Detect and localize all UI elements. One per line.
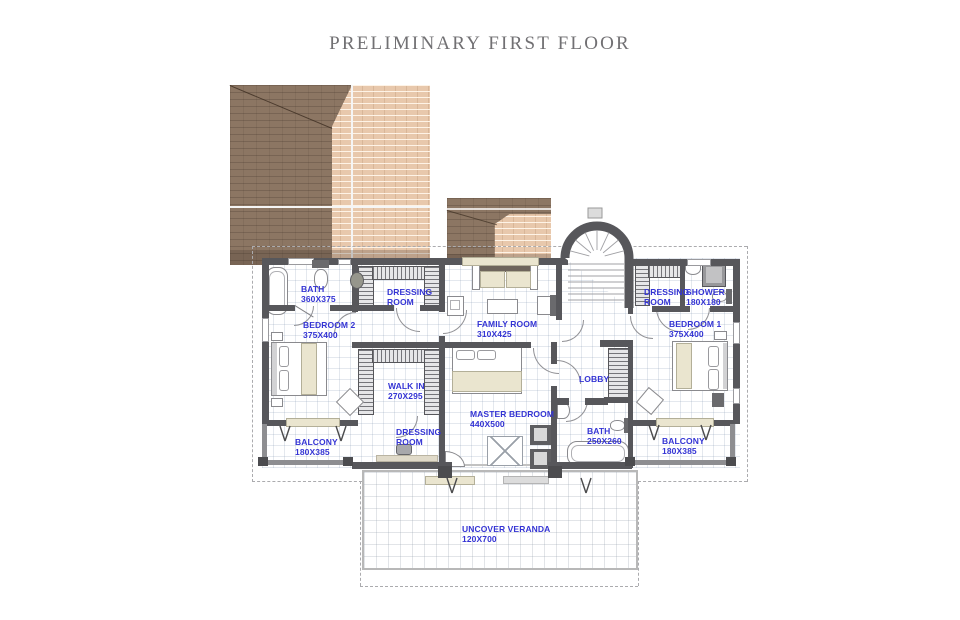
boundary-dashed-right [747,246,748,482]
side-table-icon [712,393,724,407]
page-title: PRELIMINARY FIRST FLOOR [0,33,960,55]
sliding-door [286,418,340,427]
room-label-balcony-right: BALCONY 180X385 [662,436,705,456]
roof-family-ridge [447,208,551,210]
room-name: SHOWER [686,287,725,297]
wall [439,265,445,312]
room-label-walk-in: WALK IN 270X295 [388,381,425,401]
dressing-bench [376,455,438,462]
wardrobe-icon [372,349,426,363]
wall [443,342,531,348]
wall [585,398,608,405]
pillow-icon [279,346,289,367]
room-name: BATH [587,426,622,436]
veranda-step-2 [503,476,549,484]
room-dims: 375X400 [669,329,721,339]
window [262,318,269,342]
room-label-veranda: UNCOVER VERANDA 120X700 [462,524,550,544]
wall [439,336,445,420]
drain-mark-icon [648,424,660,442]
room-label-shower: SHOWER 180X180 [686,287,725,307]
window [733,322,740,344]
wardrobe-icon [424,349,440,415]
window-family-room [462,257,539,266]
room-name: DRESSING ROOM [396,427,448,447]
blanket [452,371,522,392]
room-label-bath-1: BATH 250X260 [587,426,622,446]
room-name: LOBBY [579,374,609,384]
roof-family-hip-line [447,210,497,225]
wall [628,340,633,468]
sink-icon [350,272,364,289]
room-name: FAMILY ROOM [477,319,537,329]
veranda-column [548,466,562,478]
sofa-icon [480,271,505,288]
room-dims: 180X180 [686,297,725,307]
room-dims: 360X375 [301,294,336,304]
wall [330,305,352,311]
headboard [723,343,727,389]
pillow-icon [708,369,719,390]
blanket [301,343,317,395]
room-label-bedroom-2: BEDROOM 2 375X400 [303,320,355,340]
nightstand-icon [271,398,283,407]
room-name: UNCOVER VERANDA [462,524,550,534]
room-label-family-room: FAMILY ROOM 310X425 [477,319,537,339]
headboard [272,343,277,395]
lamp-icon [450,300,460,310]
roof-main [230,85,430,265]
coffee-table-icon [487,299,518,314]
room-name: WALK IN [388,381,425,391]
shower-tray [706,267,722,283]
roof-ridge-horizontal [230,206,430,208]
roof-main-lit-side [230,85,430,265]
floor-plan-canvas: PRELIMINARY FIRST FLOOR [0,0,960,620]
boundary-dashed-veranda-bottom [360,586,638,587]
room-label-bedroom-1: BEDROOM 1 375X400 [669,319,721,339]
room-name: MASTER BEDROOM [470,409,554,419]
room-dims: 375X400 [303,330,355,340]
wall [551,342,557,364]
balcony-post [258,457,268,466]
room-dims: 120X700 [462,534,550,544]
room-name: DRESSING ROOM [387,287,439,307]
drain-mark-icon [279,425,291,443]
boundary-dashed-bottom-left [252,481,362,482]
pillow-icon [279,370,289,391]
room-dims: 180X385 [295,447,338,457]
ottoman-cushion [534,452,547,465]
staircase-icon [556,198,638,312]
room-label-dressing-bottom: DRESSING ROOM [396,427,448,447]
window [733,388,740,404]
toilet-tank [726,289,732,304]
room-name: BALCONY [295,437,338,447]
wall [557,398,569,405]
wall [352,342,444,348]
wall [352,462,452,469]
room-label-lobby: LOBBY [579,374,609,384]
wall [265,305,295,311]
balcony-railing [262,460,352,465]
room-dims: 440X500 [470,419,554,429]
window [338,259,351,265]
room-label-balcony-left: BALCONY 180X385 [295,437,338,457]
roof-family [447,198,551,260]
drain-mark-icon [446,477,458,495]
pillow-icon [477,350,496,360]
room-name: BEDROOM 1 [669,319,721,329]
toilet-tank [312,260,329,268]
boundary-dashed-left [252,246,253,482]
drain-mark-icon [580,477,592,495]
bathtub-inner [571,445,625,462]
boundary-dashed-top [252,246,747,247]
room-label-bath-2: BATH 360X375 [301,284,336,304]
pillow-icon [456,350,475,360]
veranda-slab [362,470,638,570]
room-dims: 270X295 [388,391,425,401]
boundary-dashed-bottom-right [638,481,747,482]
roof-ridge-vertical [351,85,353,265]
room-name: BATH [301,284,336,294]
room-name: BEDROOM 2 [303,320,355,330]
window [288,258,314,265]
pillow-icon [708,346,719,367]
wall [632,259,740,266]
room-label-dressing-top-left: DRESSING ROOM [387,287,439,307]
room-dims: 250X260 [587,436,622,446]
blanket [676,343,692,389]
room-label-master-bedroom: MASTER BEDROOM 440X500 [470,409,554,429]
ottoman-cushion [534,428,547,441]
roof-hip-line [230,85,333,129]
armchair-icon [537,296,551,315]
sofa-icon [506,271,531,288]
boundary-dashed-veranda-right [638,481,639,586]
window [687,259,711,266]
wardrobe-icon [648,264,682,278]
balcony-post [726,457,736,466]
wardrobe-icon [372,266,426,280]
room-dims: 310X425 [477,329,537,339]
wall [600,340,628,347]
sofa-arm [472,265,480,290]
boundary-dashed-veranda-left [360,481,361,586]
balcony-post [625,457,635,466]
balcony-railing [632,460,735,465]
room-dims: 180X385 [662,446,705,456]
wardrobe-icon [608,348,630,400]
room-name: BALCONY [662,436,705,446]
balcony-post [343,457,353,466]
rug-icon [487,436,523,466]
sofa-arm [530,265,538,290]
nightstand-icon [271,332,283,341]
